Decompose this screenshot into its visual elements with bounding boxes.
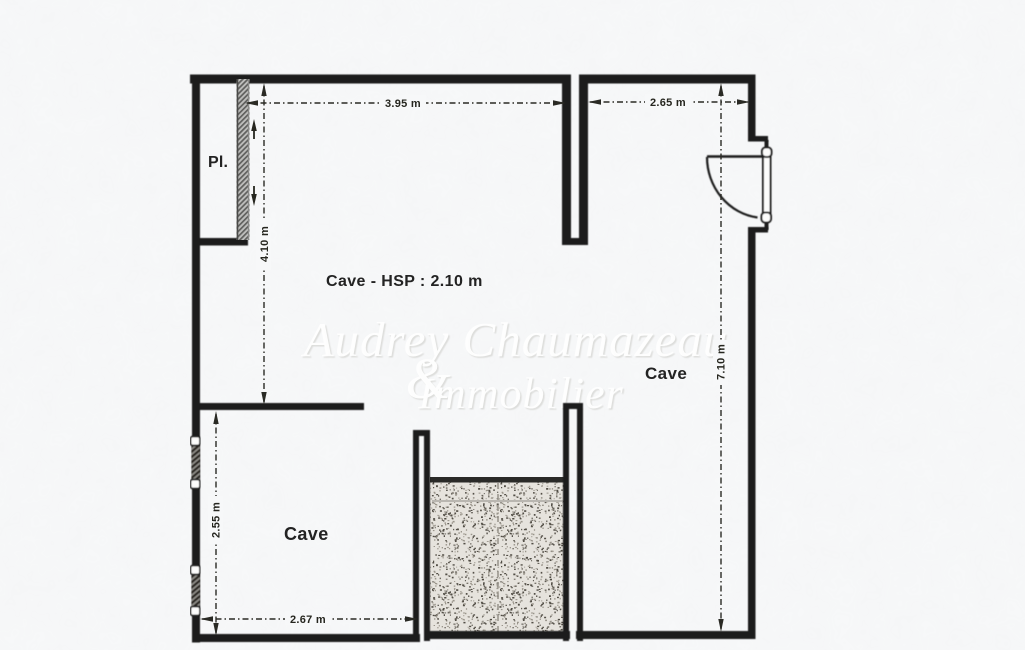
svg-text:Pl.: Pl. <box>208 154 228 171</box>
svg-text:3.95 m: 3.95 m <box>385 98 421 110</box>
svg-text:Cave: Cave <box>284 524 329 544</box>
svg-text:&: & <box>405 346 450 411</box>
svg-text:Cave - HSP : 2.10 m: Cave - HSP : 2.10 m <box>326 273 483 290</box>
svg-text:7.10 m: 7.10 m <box>716 344 728 380</box>
svg-text:2.55 m: 2.55 m <box>211 502 223 538</box>
svg-text:2.65 m: 2.65 m <box>650 97 686 109</box>
svg-text:2.67 m: 2.67 m <box>290 614 326 626</box>
svg-text:Audrey Chaumazeau: Audrey Chaumazeau <box>301 312 729 367</box>
svg-text:Cave: Cave <box>645 364 687 383</box>
svg-text:4.10 m: 4.10 m <box>259 226 271 262</box>
